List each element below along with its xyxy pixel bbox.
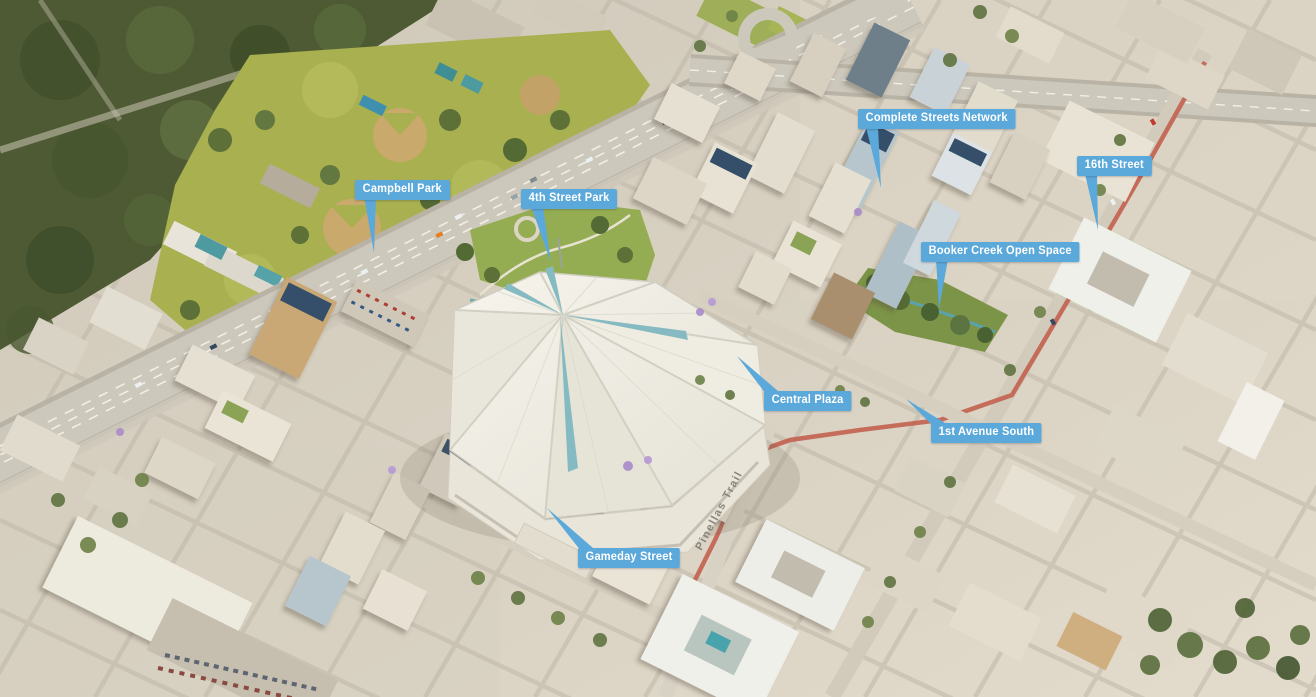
label-chip-complete-streets-network: Complete Streets Network <box>858 109 1015 129</box>
aerial-rendering: Pinellas Trail Campbell Park 4th Street … <box>0 0 1316 697</box>
aerial-scene: Pinellas Trail <box>0 0 1316 697</box>
label-chip-campbell-park: Campbell Park <box>355 180 450 200</box>
label-chip-booker-creek-open-space: Booker Creek Open Space <box>921 242 1079 262</box>
label-chip-first-avenue-south: 1st Avenue South <box>931 423 1042 443</box>
label-chip-fourth-street-park: 4th Street Park <box>521 189 617 209</box>
label-chip-sixteenth-street: 16th Street <box>1077 156 1152 176</box>
label-chip-gameday-street: Gameday Street <box>578 548 680 568</box>
label-chip-central-plaza: Central Plaza <box>764 391 851 411</box>
